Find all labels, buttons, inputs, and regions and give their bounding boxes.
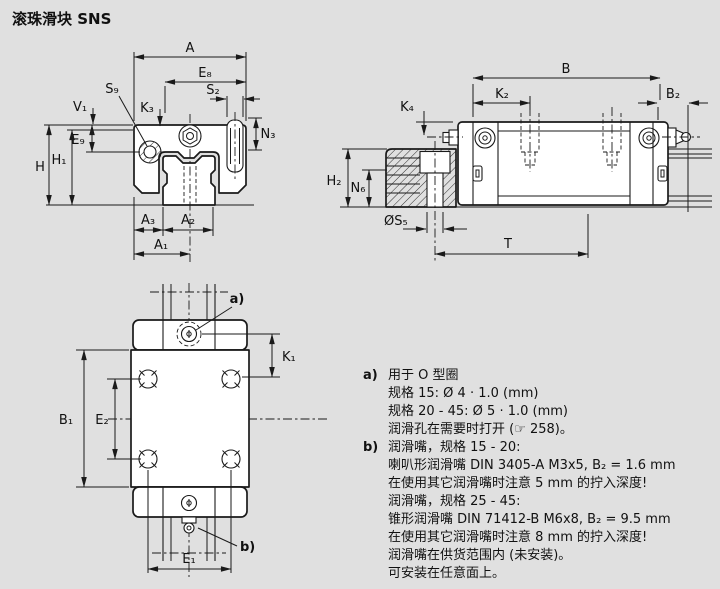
note-line: 喇叭形润滑嘴 DIN 3405-A M3x5, B₂ = 1.6 mm xyxy=(363,457,713,475)
note-line: b)润滑嘴，规格 15 - 20: xyxy=(363,439,713,457)
note-text: 锥形润滑嘴 DIN 71412-B M6x8, B₂ = 9.5 mm xyxy=(388,511,671,529)
note-marker xyxy=(363,403,388,421)
note-text: 用于 O 型圈 xyxy=(388,367,459,385)
callout-b-label: b) xyxy=(240,540,255,555)
notes: a)用于 O 型圈 规格 15: Ø 4 · 1.0 (mm) 规格 20 - … xyxy=(363,367,713,583)
note-line: 在使用其它润滑嘴时注意 8 mm 的拧入深度! xyxy=(363,529,713,547)
note-line: 润滑孔在需要时打开 (☞ 258)。 xyxy=(363,421,713,439)
note-text: 规格 20 - 45: Ø 5 · 1.0 (mm) xyxy=(388,403,568,421)
dim-label-A3: A₃ xyxy=(141,213,155,228)
note-text: 润滑孔在需要时打开 (☞ 258)。 xyxy=(388,421,573,439)
callout-a-label: a) xyxy=(230,292,245,307)
note-marker xyxy=(363,565,388,583)
note-line: 锥形润滑嘴 DIN 71412-B M6x8, B₂ = 9.5 mm xyxy=(363,511,713,529)
note-marker xyxy=(363,493,388,511)
note-marker xyxy=(363,511,388,529)
dim-label-S2: S₂ xyxy=(206,83,219,98)
dim-label-H2: H₂ xyxy=(327,174,342,189)
dim-label-H1: H₁ xyxy=(52,153,67,168)
note-marker: b) xyxy=(363,439,388,457)
note-text: 在使用其它润滑嘴时注意 8 mm 的拧入深度! xyxy=(388,529,647,547)
note-marker xyxy=(363,421,388,439)
rail-profile xyxy=(163,156,215,205)
note-text: 规格 15: Ø 4 · 1.0 (mm) xyxy=(388,385,539,403)
grease-nipple-top-view xyxy=(182,517,196,533)
dim-label-A1: A₁ xyxy=(154,238,168,253)
dim-label-N6: N₆ xyxy=(351,181,366,196)
side-view: B K₂ B₂ K₄ H₂ N₆ ØS₅ T xyxy=(327,62,713,262)
top-view: a) b) K₁ B₁ E₂ E₁ xyxy=(59,283,330,577)
dim-label-B2: B₂ xyxy=(666,87,680,102)
dim-label-E8: E₈ xyxy=(198,66,211,81)
dim-label-K1: K₁ xyxy=(282,350,296,365)
dim-label-A2: A₂ xyxy=(181,213,195,228)
note-line: a)用于 O 型圈 xyxy=(363,367,713,385)
dim-label-E2: E₂ xyxy=(95,413,108,428)
dim-label-B: B xyxy=(562,62,571,77)
note-line: 可安装在任意面上。 xyxy=(363,565,713,583)
dim-label-B1: B₁ xyxy=(59,413,73,428)
dim-label-E9: E₉ xyxy=(71,133,84,148)
grease-nipple-left xyxy=(427,130,463,145)
note-marker xyxy=(363,475,388,493)
dim-label-S5: ØS₅ xyxy=(384,214,408,229)
dim-label-K2: K₂ xyxy=(495,87,509,102)
front-view: A E₈ S₉ V₁ K₃ S₂ N₃ E₉ H₁ xyxy=(35,41,275,262)
thread-slot xyxy=(227,120,243,172)
page: 滚珠滑块 SNS xyxy=(0,0,720,589)
note-marker xyxy=(363,457,388,475)
dim-label-K3: K₃ xyxy=(140,101,154,116)
dim-label-H: H xyxy=(35,160,45,175)
note-text: 喇叭形润滑嘴 DIN 3405-A M3x5, B₂ = 1.6 mm xyxy=(388,457,676,475)
note-line: 在使用其它润滑嘴时注意 5 mm 的拧入深度! xyxy=(363,475,713,493)
note-text: 在使用其它润滑嘴时注意 5 mm 的拧入深度! xyxy=(388,475,647,493)
dim-label-E1: E₁ xyxy=(182,552,195,567)
dim-label-V1: V₁ xyxy=(73,100,87,115)
note-marker: a) xyxy=(363,367,388,385)
note-line: 润滑嘴在供货范围内 (未安装)。 xyxy=(363,547,713,565)
note-line: 润滑嘴，规格 25 - 45: xyxy=(363,493,713,511)
dim-label-A: A xyxy=(186,41,195,56)
note-text: 润滑嘴在供货范围内 (未安装)。 xyxy=(388,547,571,565)
note-line: 规格 15: Ø 4 · 1.0 (mm) xyxy=(363,385,713,403)
dim-label-T: T xyxy=(503,237,512,252)
note-line: 规格 20 - 45: Ø 5 · 1.0 (mm) xyxy=(363,403,713,421)
note-marker xyxy=(363,529,388,547)
note-text: 润滑嘴，规格 15 - 20: xyxy=(388,439,521,457)
dim-label-K4: K₄ xyxy=(400,100,414,115)
grease-nipple-right xyxy=(662,128,700,147)
dim-label-N3: N₃ xyxy=(261,127,276,142)
note-text: 润滑嘴，规格 25 - 45: xyxy=(388,493,521,511)
note-marker xyxy=(363,385,388,403)
dim-label-S9: S₉ xyxy=(105,82,118,97)
note-marker xyxy=(363,547,388,565)
note-text: 可安装在任意面上。 xyxy=(388,565,505,583)
